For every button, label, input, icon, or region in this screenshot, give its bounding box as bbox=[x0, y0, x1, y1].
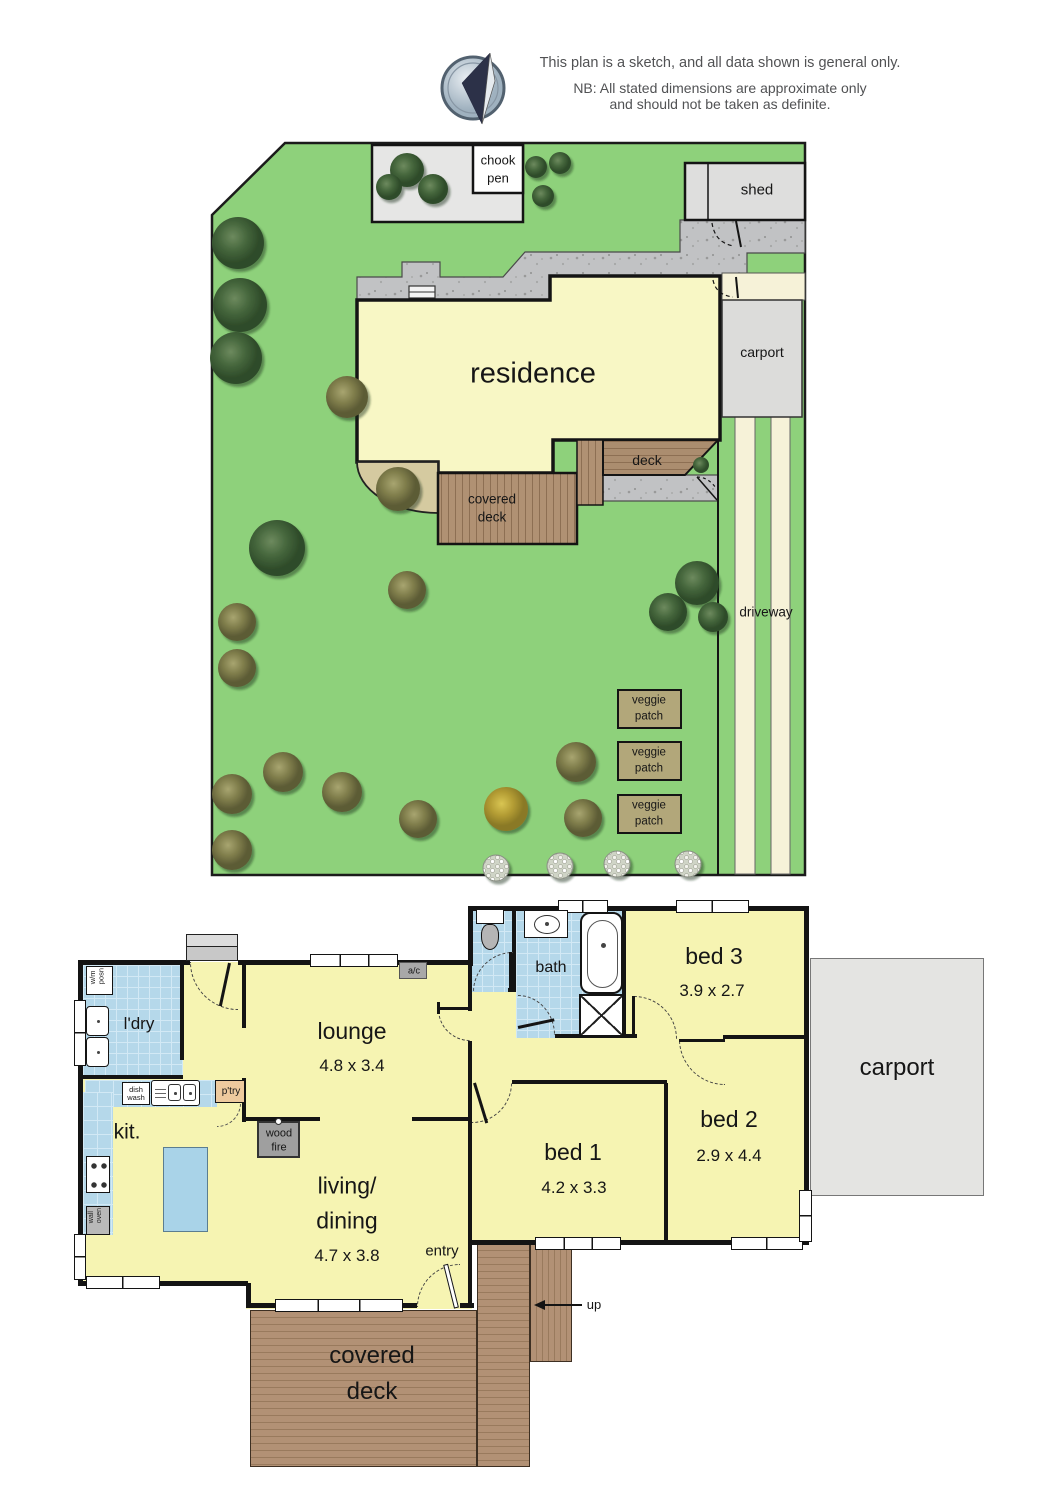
window bbox=[799, 1190, 812, 1242]
wood-fire-label: wood fire bbox=[266, 1127, 292, 1156]
carport-site bbox=[722, 300, 802, 417]
pantry: p'try bbox=[215, 1080, 245, 1103]
tree bbox=[218, 649, 256, 687]
kitchen-island bbox=[163, 1147, 208, 1232]
flue bbox=[275, 1118, 282, 1125]
window bbox=[74, 1234, 86, 1280]
tree bbox=[564, 799, 602, 837]
laundry-trough bbox=[86, 1006, 109, 1036]
tree bbox=[213, 278, 267, 332]
wall bbox=[242, 962, 246, 1028]
wall bbox=[160, 1281, 248, 1286]
drainer bbox=[155, 1086, 166, 1099]
bed3-door bbox=[632, 996, 635, 1038]
wall bbox=[80, 960, 190, 965]
wall bbox=[78, 960, 83, 1002]
compass-icon bbox=[442, 53, 504, 124]
tree bbox=[399, 800, 437, 838]
covered-deck-fp bbox=[250, 1310, 477, 1467]
bed2-door bbox=[679, 1039, 725, 1042]
wc-door bbox=[509, 952, 512, 992]
wall bbox=[512, 1080, 667, 1084]
laundry-trough bbox=[86, 1037, 109, 1067]
flower-bush bbox=[604, 851, 630, 877]
flower-bush bbox=[547, 853, 573, 879]
tree bbox=[376, 467, 420, 511]
wall-oven: wall oven bbox=[86, 1206, 110, 1235]
lounge-door bbox=[438, 1007, 470, 1010]
tree bbox=[212, 774, 252, 814]
tree bbox=[556, 742, 596, 782]
wall bbox=[468, 906, 473, 966]
pantry-label: p'try bbox=[222, 1085, 241, 1099]
wall bbox=[748, 906, 809, 911]
wall-oven-label: wall oven bbox=[88, 1208, 104, 1223]
flower-bush bbox=[675, 851, 701, 877]
toilet bbox=[476, 909, 504, 924]
kitchen-sink bbox=[151, 1080, 200, 1106]
shower bbox=[579, 994, 624, 1037]
window bbox=[310, 954, 398, 967]
cooktop bbox=[86, 1156, 110, 1193]
site-plan bbox=[0, 0, 1060, 890]
plant bbox=[693, 457, 709, 473]
plan-canvas: This plan is a sketch, and all data show… bbox=[0, 0, 1060, 1500]
driveway-entry bbox=[722, 273, 805, 300]
wall bbox=[804, 906, 809, 1192]
veggie-patch bbox=[618, 795, 681, 833]
tree bbox=[376, 174, 402, 200]
wall bbox=[83, 1075, 183, 1079]
wall bbox=[246, 1283, 251, 1308]
tree bbox=[212, 217, 264, 269]
wm-label: w/m posn bbox=[89, 968, 106, 984]
shrub bbox=[549, 152, 571, 174]
toilet-bowl bbox=[481, 924, 499, 950]
wall bbox=[180, 962, 184, 1060]
wall bbox=[470, 1240, 537, 1245]
door-stop bbox=[437, 1002, 440, 1014]
tree bbox=[418, 174, 448, 204]
tree bbox=[218, 603, 256, 641]
washing-machine-position: w/m posn bbox=[86, 966, 113, 995]
driveway-stripe bbox=[735, 417, 755, 874]
up-arrow-line bbox=[544, 1304, 582, 1306]
veggie-patch bbox=[618, 690, 681, 728]
shrub bbox=[532, 185, 554, 207]
wall bbox=[402, 1303, 417, 1308]
wood-fire: wood fire bbox=[257, 1121, 300, 1158]
shrub bbox=[525, 156, 547, 178]
tree bbox=[322, 772, 362, 812]
window bbox=[731, 1237, 803, 1250]
porch bbox=[186, 946, 238, 961]
wall bbox=[238, 960, 312, 965]
vanity bbox=[524, 910, 568, 938]
veggie-patch bbox=[618, 742, 681, 780]
floor-plan: a/c w/m posn dish wash p'try wall oven w… bbox=[60, 890, 1000, 1490]
chook-pen-label-box bbox=[473, 145, 523, 193]
tree bbox=[210, 332, 262, 384]
tub-inner bbox=[587, 920, 618, 988]
window bbox=[676, 900, 749, 913]
wall bbox=[723, 1035, 809, 1039]
window bbox=[74, 1000, 86, 1066]
tree bbox=[675, 561, 719, 605]
tree bbox=[649, 593, 687, 631]
window bbox=[86, 1276, 160, 1289]
window bbox=[275, 1299, 403, 1312]
tree bbox=[212, 830, 252, 870]
bathtub bbox=[580, 912, 623, 994]
tree bbox=[326, 376, 368, 418]
tree bbox=[484, 787, 528, 831]
tree bbox=[388, 571, 426, 609]
tree bbox=[698, 602, 728, 632]
deck-walkway bbox=[477, 1243, 530, 1467]
flower-bush bbox=[483, 855, 509, 881]
wall bbox=[468, 1041, 472, 1307]
wall bbox=[78, 1065, 83, 1236]
tree bbox=[249, 520, 305, 576]
wall bbox=[468, 966, 472, 1011]
wall bbox=[412, 1117, 472, 1121]
tree bbox=[263, 752, 303, 792]
wall bbox=[664, 1083, 668, 1243]
carport-fp bbox=[810, 958, 984, 1196]
up-label: up bbox=[587, 1296, 601, 1314]
dishwasher-label: dish wash bbox=[127, 1086, 145, 1103]
deck-stairs-site bbox=[577, 440, 603, 505]
shed-site bbox=[685, 163, 805, 220]
basin bbox=[534, 915, 560, 934]
driveway-stripe bbox=[771, 417, 790, 874]
ac-label: a/c bbox=[408, 965, 420, 978]
back-path bbox=[601, 475, 718, 501]
wall bbox=[607, 906, 678, 911]
dishwasher: dish wash bbox=[122, 1082, 150, 1105]
window bbox=[535, 1237, 621, 1250]
covered-deck-site bbox=[438, 473, 577, 544]
ac-unit: a/c bbox=[399, 962, 427, 979]
wall bbox=[620, 1240, 733, 1245]
